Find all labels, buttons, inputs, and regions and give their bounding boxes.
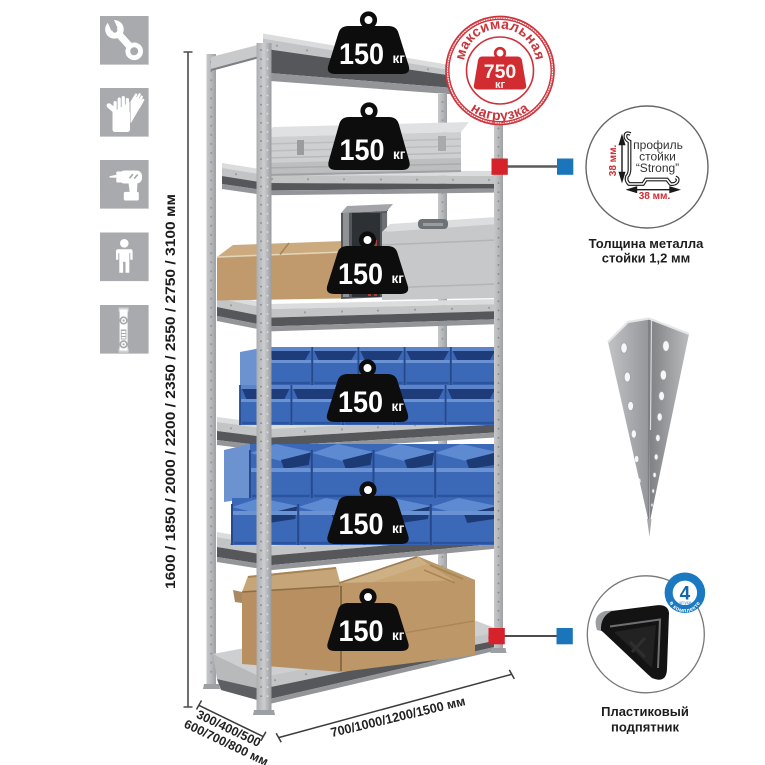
svg-text:кг: кг bbox=[392, 399, 405, 414]
svg-text:кг: кг bbox=[392, 271, 405, 286]
svg-text:38 мм.: 38 мм. bbox=[608, 145, 619, 177]
svg-text:стойки 1,2 мм: стойки 1,2 мм bbox=[602, 250, 690, 265]
svg-text:кг: кг bbox=[495, 79, 506, 91]
svg-text:150: 150 bbox=[339, 508, 384, 541]
svg-text:150: 150 bbox=[338, 386, 383, 419]
svg-text:150: 150 bbox=[339, 38, 384, 71]
svg-text:штуки: штуки bbox=[679, 600, 692, 605]
svg-text:38 мм.: 38 мм. bbox=[639, 191, 671, 202]
svg-text:кг: кг bbox=[392, 628, 405, 643]
svg-text:подпятник: подпятник bbox=[611, 720, 680, 735]
svg-text:кг: кг bbox=[392, 521, 405, 536]
svg-text:Пластиковый: Пластиковый bbox=[601, 704, 689, 719]
svg-text:150: 150 bbox=[338, 258, 383, 291]
svg-text:кг: кг bbox=[393, 51, 406, 66]
svg-text:кг: кг bbox=[393, 147, 406, 162]
svg-text:“Strong”: “Strong” bbox=[636, 161, 679, 175]
svg-text:1600 / 1850 / 2000 / 2200 / 23: 1600 / 1850 / 2000 / 2200 / 2350 / 2550 … bbox=[162, 194, 178, 589]
svg-text:150: 150 bbox=[339, 615, 384, 648]
svg-text:150: 150 bbox=[340, 134, 385, 167]
svg-text:Толщина металла: Толщина металла bbox=[589, 236, 704, 251]
